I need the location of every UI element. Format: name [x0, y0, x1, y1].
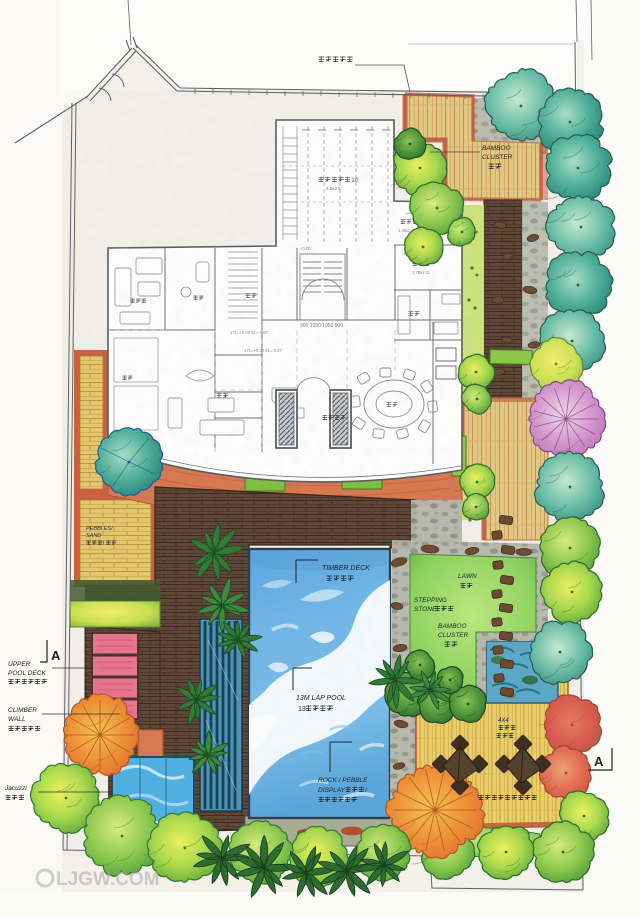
- svg-text:A: A: [51, 648, 61, 663]
- svg-text:STONE: STONE: [414, 606, 437, 613]
- svg-text:POOL DECK: POOL DECK: [8, 670, 46, 677]
- svg-text:13: 13: [298, 706, 306, 713]
- svg-text:A: A: [594, 754, 604, 769]
- svg-text:WALL: WALL: [8, 716, 26, 723]
- svg-text:DISPLAY: DISPLAY: [318, 787, 346, 794]
- svg-text:UPPER: UPPER: [8, 661, 31, 668]
- svg-text:Jacuzzi: Jacuzzi: [4, 785, 27, 792]
- svg-text:PEBBLES/: PEBBLES/: [86, 526, 113, 532]
- svg-text:CLUSTER: CLUSTER: [438, 632, 469, 639]
- svg-text:TIMBER DECK: TIMBER DECK: [322, 565, 370, 572]
- svg-text:13M LAP POOL: 13M LAP POOL: [296, 695, 346, 702]
- svg-text:SAND: SAND: [86, 533, 101, 539]
- svg-text:STEPPING: STEPPING: [414, 597, 447, 604]
- svg-text:BAMBOO: BAMBOO: [482, 145, 511, 152]
- svg-text:ROCK / PEBBLE: ROCK / PEBBLE: [318, 777, 368, 784]
- svg-text:CLUSTER: CLUSTER: [482, 154, 513, 161]
- svg-text:LJGW.COM: LJGW.COM: [56, 869, 159, 890]
- svg-text:CLIMBER: CLIMBER: [8, 707, 37, 714]
- svg-text:4X4: 4X4: [498, 718, 509, 724]
- svg-text:LAWN: LAWN: [458, 573, 477, 580]
- svg-text:BAMBOO: BAMBOO: [438, 623, 467, 630]
